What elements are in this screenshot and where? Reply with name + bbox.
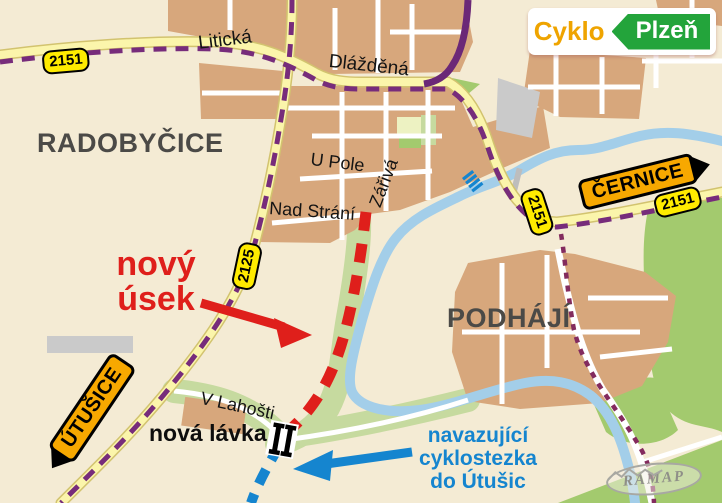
cyklo-plzen-logo: Cyklo Plzeň [528, 8, 716, 55]
logo-plzen-arrow: Plzeň [612, 14, 711, 50]
connecting-path-label: navazující cyklostezka do Útušic [396, 424, 560, 493]
connecting-path-line2: cyklostezka [396, 447, 560, 470]
area-label-podhaji: PODHÁJÍ [447, 303, 571, 334]
logo-cyklo-text: Cyklo [534, 16, 605, 47]
new-section-line2: úsek [100, 282, 212, 317]
connecting-path-line1: navazující [396, 424, 560, 447]
new-section-label: nový úsek [100, 247, 212, 316]
new-section-line1: nový [100, 247, 212, 282]
footbridge-icon [265, 420, 299, 459]
area-label-radobycice: RADOBYČICE [37, 128, 224, 159]
connecting-path-line3: do Útušic [396, 470, 560, 493]
cycle-map: Litická Dlážděná U Pole Zářivá Nad Strán… [0, 0, 722, 503]
route-badge-2151-left: 2151 [41, 47, 90, 75]
footbridge-label: nová lávka [149, 420, 267, 447]
